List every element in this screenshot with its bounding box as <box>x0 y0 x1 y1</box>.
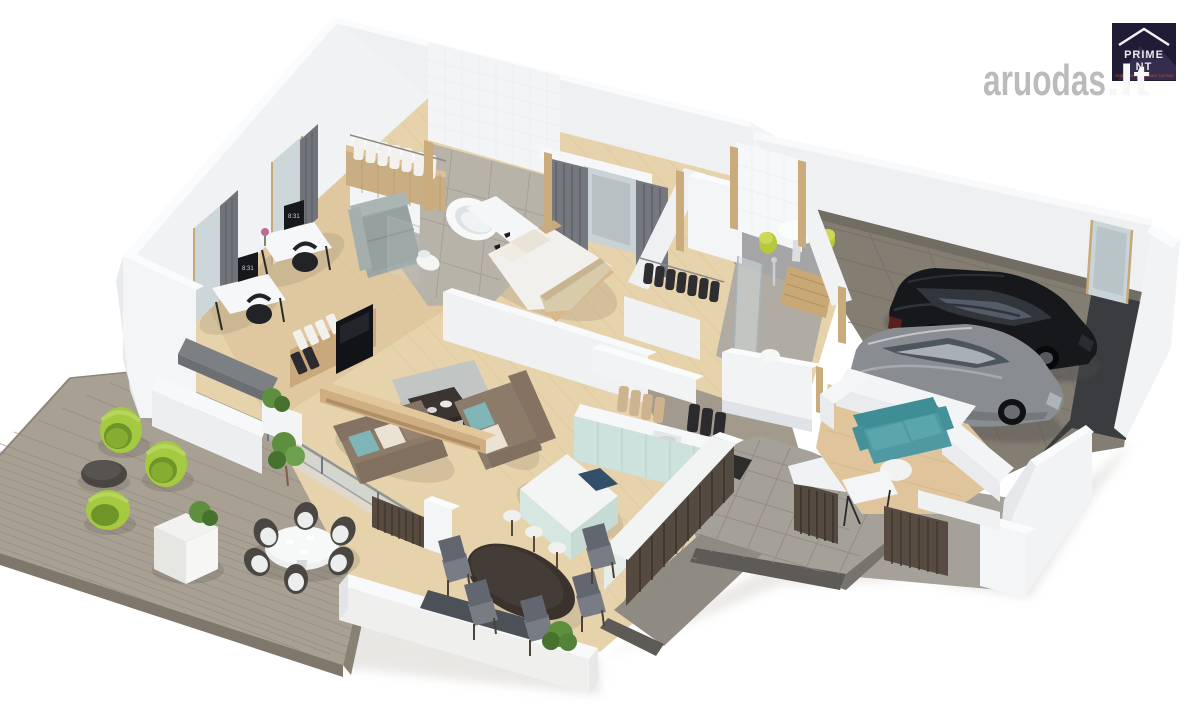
svg-text:8:31: 8:31 <box>242 266 254 272</box>
svg-text:.lt: .lt <box>1106 56 1150 105</box>
svg-text:8:31: 8:31 <box>288 214 300 220</box>
svg-text:aruodas: aruodas <box>983 56 1106 105</box>
